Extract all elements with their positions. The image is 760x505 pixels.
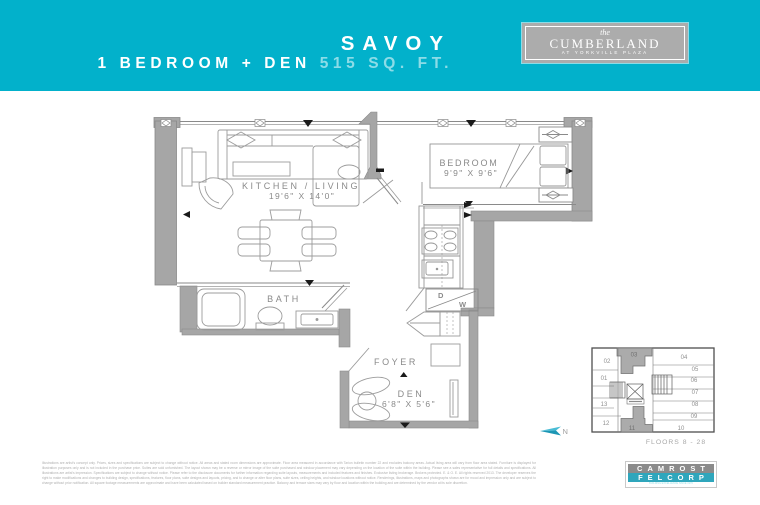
svg-text:FOYER: FOYER: [374, 357, 418, 367]
svg-text:10: 10: [678, 426, 685, 432]
svg-text:11: 11: [629, 426, 636, 432]
svg-text:13: 13: [601, 402, 608, 408]
svg-text:04: 04: [681, 355, 688, 361]
svg-text:19'6" X 14'0": 19'6" X 14'0": [269, 191, 335, 201]
svg-text:W: W: [459, 300, 467, 309]
svg-text:D: D: [438, 291, 444, 300]
svg-text:BATH: BATH: [267, 294, 301, 304]
svg-text:N: N: [563, 427, 568, 436]
svg-text:9'9" X 9'6": 9'9" X 9'6": [444, 168, 498, 178]
svg-text:01: 01: [601, 376, 608, 382]
svg-text:09: 09: [691, 414, 698, 420]
svg-text:02: 02: [604, 359, 611, 365]
svg-text:07: 07: [692, 390, 699, 396]
svg-text:05: 05: [692, 367, 699, 373]
svg-text:FLOORS 8 - 28: FLOORS 8 - 28: [646, 439, 706, 446]
svg-text:03: 03: [631, 353, 638, 359]
svg-text:6'8" X 5'6": 6'8" X 5'6": [382, 399, 436, 409]
svg-text:DEN: DEN: [398, 389, 425, 399]
svg-text:08: 08: [692, 402, 699, 408]
svg-text:KITCHEN / LIVING: KITCHEN / LIVING: [242, 181, 360, 191]
svg-text:12: 12: [603, 421, 610, 427]
svg-text:06: 06: [691, 378, 698, 384]
svg-text:BEDROOM: BEDROOM: [439, 158, 498, 168]
